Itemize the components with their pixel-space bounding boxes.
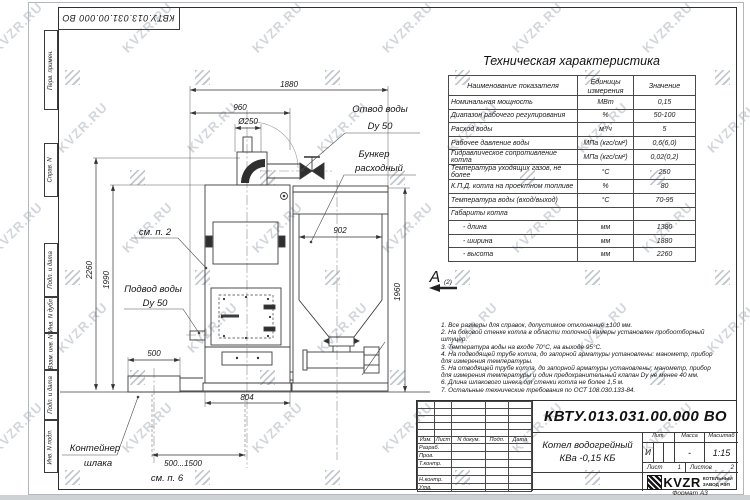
spec-param-value: 250 bbox=[634, 165, 696, 180]
title-block-empty-cell bbox=[452, 430, 486, 437]
dim-flue-diameter: Ø250 bbox=[237, 117, 258, 126]
spec-row: Гидравлическое сопротивление котлаМПа (к… bbox=[449, 150, 696, 165]
title-block-role-cell: Утв. bbox=[418, 484, 452, 492]
dim-container-width: 500 bbox=[147, 349, 161, 358]
spec-param-name: Расход воды bbox=[449, 123, 578, 137]
product-name-line2: КВа -0,15 КБ bbox=[560, 453, 616, 466]
label-water-outlet: Отвод воды bbox=[352, 104, 408, 115]
title-block-empty-cell bbox=[452, 452, 486, 460]
spec-param-name: Номинальная мощность bbox=[449, 96, 578, 110]
technical-note: 3. Температура воды на входе 70°С, на вы… bbox=[441, 344, 719, 351]
title-block-header-cell: Лист bbox=[434, 437, 451, 444]
dimension-texts: 1880 960 Ø250 902 1960 2260 1990 804 500… bbox=[85, 80, 402, 468]
technical-note: 5. На отводящей трубе котла, до запорной… bbox=[441, 365, 719, 379]
dim-bunker-width: 902 bbox=[333, 226, 347, 235]
title-block-signature-grid: Изм.ЛистN докум.Подп.ДатаРазраб.Пров.Т.к… bbox=[417, 401, 532, 492]
title-block-empty-cell bbox=[532, 473, 642, 491]
spec-row: - ширинамм1880 bbox=[449, 234, 696, 248]
spec-param-unit: МПа (кгс/см²) bbox=[578, 136, 634, 150]
lit-value: И bbox=[642, 443, 653, 463]
spec-param-name: Рабочее давление воды bbox=[449, 136, 578, 150]
technical-note: 7. Остальные технические требования по О… bbox=[441, 387, 719, 394]
spec-param-unit: МВт bbox=[578, 96, 634, 110]
spec-row: Номинальная мощностьМВт0,15 bbox=[449, 96, 696, 110]
dim-bunker-height: 1960 bbox=[393, 283, 402, 301]
technical-notes: 1. Все размеры для справок, допустимое о… bbox=[441, 322, 719, 394]
title-block-role-cell: Т.контр. bbox=[418, 460, 452, 468]
title-block-empty-cell bbox=[452, 416, 486, 423]
title-block-empty-cell bbox=[486, 460, 508, 468]
spec-param-name: Температура уходящих газов, не более bbox=[449, 165, 578, 180]
kvzr-logo-sub2: ЗАВОД РЭП bbox=[703, 482, 733, 488]
kvzr-logo-text: KVZR bbox=[663, 475, 700, 490]
title-block-empty-cell bbox=[452, 444, 486, 452]
spec-param-unit: мм bbox=[578, 234, 634, 248]
spec-param-value: 1380 bbox=[634, 221, 696, 235]
title-block-empty-cell bbox=[486, 484, 508, 492]
title-block-empty-cell bbox=[434, 430, 451, 437]
spec-row: Расход водым³/ч5 bbox=[449, 123, 696, 137]
spec-param-name: - ширина bbox=[449, 234, 578, 248]
title-block-empty-cell bbox=[434, 423, 451, 430]
label-water-inlet: Подвод воды bbox=[124, 284, 182, 295]
spec-param-value: 80 bbox=[634, 180, 696, 194]
spec-param-name: Диапазон рабочего регулирования bbox=[449, 109, 578, 123]
title-block-empty-cell bbox=[452, 460, 486, 468]
technical-note: 4. На подводящей трубе котла, до запорно… bbox=[441, 351, 719, 365]
title-block-empty-cell bbox=[434, 402, 451, 409]
title-block-empty-cell bbox=[452, 476, 486, 484]
dim-boiler-height2: 1990 bbox=[102, 271, 111, 289]
product-name-line1: Котел водогрейный bbox=[542, 440, 632, 453]
title-block-empty-cell bbox=[452, 423, 486, 430]
spec-param-value: 0,02(0,2) bbox=[634, 150, 696, 165]
title-block-empty-cell bbox=[486, 476, 508, 484]
sheets-label: Листов bbox=[690, 465, 712, 471]
title-block-empty-cell bbox=[508, 430, 531, 437]
spec-param-name: - длина bbox=[449, 221, 578, 235]
sheets-cell: Листов 2 bbox=[685, 463, 738, 473]
technical-note: 2. На боковой стенке котла в области топ… bbox=[441, 329, 719, 343]
title-block-empty-cell bbox=[486, 409, 508, 416]
sheets-number: 2 bbox=[731, 465, 734, 471]
title-block-role-cell bbox=[418, 468, 452, 476]
spec-param-name: К.П.Д. котла на проектном топливе bbox=[449, 180, 578, 194]
spec-row: Габариты котла bbox=[449, 207, 696, 221]
spec-row: Температура уходящих газов, не более°С25… bbox=[449, 165, 696, 180]
title-block-empty-cell bbox=[508, 423, 531, 430]
title-block-empty-cell bbox=[508, 452, 531, 460]
spec-param-value: 1880 bbox=[634, 234, 696, 248]
title-block-empty-cell bbox=[418, 416, 435, 423]
spec-param-name: Габариты котла bbox=[449, 207, 578, 221]
mass-header: Масса bbox=[674, 433, 704, 443]
spec-param-unit: °С bbox=[578, 165, 634, 180]
title-block-header-cell: Изм. bbox=[418, 437, 435, 444]
spec-table: Наименование показателяЕдиницы измерения… bbox=[448, 75, 696, 262]
label-see-note-6: см. п. 6 bbox=[151, 473, 184, 484]
spec-param-value: 0,15 bbox=[634, 96, 696, 110]
spec-param-name: - высота bbox=[449, 248, 578, 262]
title-block-empty-cell bbox=[434, 416, 451, 423]
dim-base-width: 804 bbox=[240, 393, 254, 402]
title-block-empty-cell bbox=[434, 409, 451, 416]
leader-lines bbox=[62, 133, 420, 455]
technical-note: 6. Длина шлакового шнека от стенки котла… bbox=[441, 379, 719, 386]
title-block-empty-cell bbox=[508, 484, 531, 492]
kvzr-logo-icon bbox=[648, 476, 661, 489]
spec-row: Температура воды (вход/выход)°С70-95 bbox=[449, 193, 696, 207]
dim-overall-width: 1880 bbox=[280, 80, 298, 89]
spec-param-value: 70-95 bbox=[634, 193, 696, 207]
title-block: Изм.ЛистN докум.Подп.ДатаРазраб.Пров.Т.к… bbox=[416, 400, 737, 490]
title-block-empty-cell bbox=[452, 409, 486, 416]
view-a-letter: А bbox=[429, 269, 441, 286]
dim-boiler-height: 2260 bbox=[85, 261, 94, 280]
bunker-outline bbox=[290, 186, 388, 391]
sheet-number: 1 bbox=[678, 465, 681, 471]
title-block-empty-cell bbox=[418, 409, 435, 416]
spec-param-name: Температура воды (вход/выход) bbox=[449, 193, 578, 207]
title-block-empty-cell bbox=[508, 402, 531, 409]
scale-value: 1:15 bbox=[704, 443, 738, 463]
title-block-header-cell: N докум. bbox=[452, 437, 486, 444]
spec-row: - длинамм1380 bbox=[449, 221, 696, 235]
spec-row: К.П.Д. котла на проектном топливе%80 bbox=[449, 180, 696, 194]
spec-table-title: Техническая характеристика bbox=[448, 54, 695, 68]
spec-param-unit: мм bbox=[578, 248, 634, 262]
title-block-role-cell: Пров. bbox=[418, 452, 452, 460]
title-block-empty-cell bbox=[486, 430, 508, 437]
title-block-product-name: Котел водогрейный КВа -0,15 КБ bbox=[532, 433, 642, 473]
title-block-empty-cell bbox=[508, 416, 531, 423]
title-block-empty-cell bbox=[508, 468, 531, 476]
scale-header: Масштаб bbox=[704, 433, 738, 443]
company-logo: KVZR КОТЕЛЬНЫЙ ЗАВОД РЭП bbox=[642, 473, 738, 491]
spec-param-unit: % bbox=[578, 109, 634, 123]
dim-container-travel: 500...1500 bbox=[164, 459, 202, 468]
spec-column-header: Единицы измерения bbox=[578, 76, 634, 96]
page-bottom-edge bbox=[0, 495, 750, 500]
dim-front-width: 960 bbox=[233, 103, 247, 112]
spec-column-header: Наименование показателя bbox=[449, 76, 578, 96]
title-block-empty-cell bbox=[452, 484, 486, 492]
spec-param-value: 5 bbox=[634, 123, 696, 137]
title-block-empty-cell bbox=[486, 452, 508, 460]
title-block-empty-cell bbox=[452, 402, 486, 409]
label-water-outlet-dn: Dy 50 bbox=[368, 121, 394, 132]
spec-row: Рабочее давление водыМПа (кгс/см²)0,6(6,… bbox=[449, 136, 696, 150]
title-block-empty-cell bbox=[418, 430, 435, 437]
label-water-inlet-dn: Dy 50 bbox=[143, 298, 169, 309]
spec-param-unit: МПа (кгс/см²) bbox=[578, 150, 634, 165]
spec-param-value: 50-100 bbox=[634, 109, 696, 123]
spec-param-unit: м³/ч bbox=[578, 123, 634, 137]
spec-param-value: 0,6(6,0) bbox=[634, 136, 696, 150]
title-block-empty-cell bbox=[508, 444, 531, 452]
title-block-empty-cell bbox=[486, 423, 508, 430]
title-block-empty-cell bbox=[508, 476, 531, 484]
title-block-header-cell: Подп. bbox=[486, 437, 508, 444]
label-hopper2: расходный bbox=[354, 163, 404, 174]
spec-param-unit: % bbox=[578, 180, 634, 194]
mass-value: - bbox=[674, 443, 704, 463]
spec-param-unit: °С bbox=[578, 193, 634, 207]
title-block-empty-cell bbox=[486, 402, 508, 409]
spec-column-header: Значение bbox=[634, 76, 696, 96]
spec-param-unit bbox=[578, 207, 634, 221]
spec-param-value: 2260 bbox=[634, 248, 696, 262]
lit-value-2 bbox=[653, 443, 663, 463]
title-block-empty-cell bbox=[418, 402, 435, 409]
label-see-note-2: см. п. 2 bbox=[139, 227, 172, 238]
title-block-empty-cell bbox=[486, 444, 508, 452]
title-block-empty-cell bbox=[418, 423, 435, 430]
lit-value-3 bbox=[663, 443, 674, 463]
title-block-role-cell: Н.контр. bbox=[418, 476, 452, 484]
spec-param-unit: мм bbox=[578, 221, 634, 235]
title-block-empty-cell bbox=[486, 468, 508, 476]
lit-header: Лит. bbox=[642, 433, 674, 443]
title-block-empty-cell bbox=[486, 416, 508, 423]
label-slag-container: Контейнер bbox=[70, 443, 120, 454]
spec-param-value bbox=[634, 207, 696, 221]
title-block-header-cell: Дата bbox=[508, 437, 531, 444]
drawing-sheet: KVZR.RUKVZR.RUKVZR.RUKVZR.RUKVZR.RUKVZR.… bbox=[0, 0, 750, 500]
label-slag-container2: шлака bbox=[84, 458, 112, 469]
spec-row: Диапазон рабочего регулирования%50-100 bbox=[449, 109, 696, 123]
view-a-sub: (2) bbox=[444, 279, 452, 286]
sheet-cell: Лист 1 bbox=[642, 463, 685, 473]
sheet-label: Лист bbox=[647, 465, 662, 471]
label-hopper: Бункер bbox=[358, 149, 389, 160]
title-block-empty-cell bbox=[508, 460, 531, 468]
title-block-role-cell: Разраб. bbox=[418, 444, 452, 452]
spec-param-name: Гидравлическое сопротивление котла bbox=[449, 150, 578, 165]
spec-row: - высотамм2260 bbox=[449, 248, 696, 262]
title-block-empty-cell bbox=[508, 409, 531, 416]
title-block-doc-number: КВТУ.013.031.00.000 ВО bbox=[532, 401, 738, 433]
title-block-empty-cell bbox=[452, 468, 486, 476]
